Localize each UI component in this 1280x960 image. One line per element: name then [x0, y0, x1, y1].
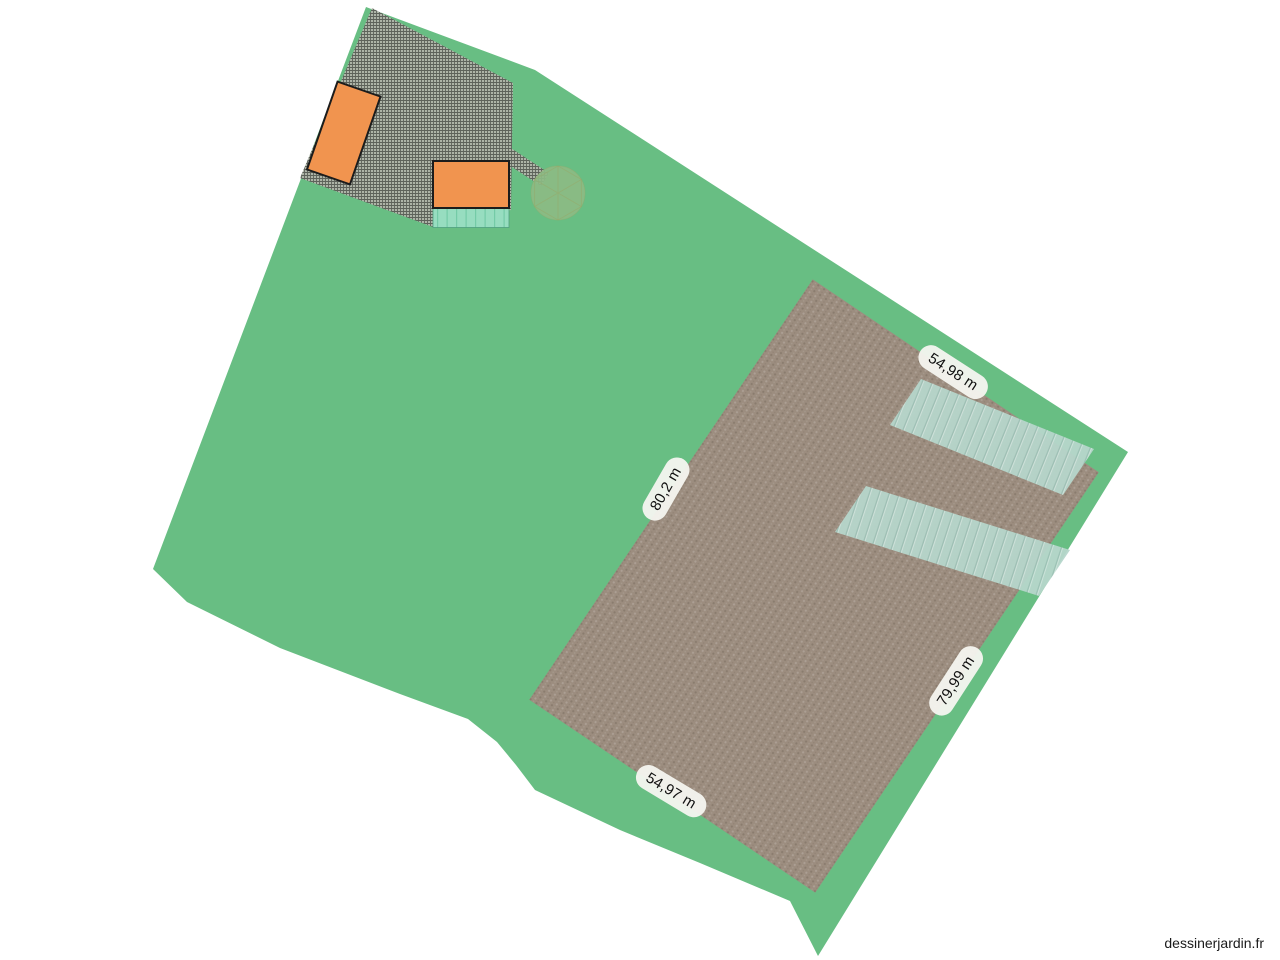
garden-plan-canvas[interactable]: 54,98 m 80,2 m 79,99 m 54,97 m dessinerj… — [0, 0, 1280, 960]
building-2[interactable] — [433, 161, 509, 208]
tree-symbol[interactable] — [531, 166, 585, 220]
plan-drawing — [0, 0, 1280, 960]
site-watermark: dessinerjardin.fr — [1164, 935, 1264, 951]
terrace[interactable] — [433, 208, 509, 228]
